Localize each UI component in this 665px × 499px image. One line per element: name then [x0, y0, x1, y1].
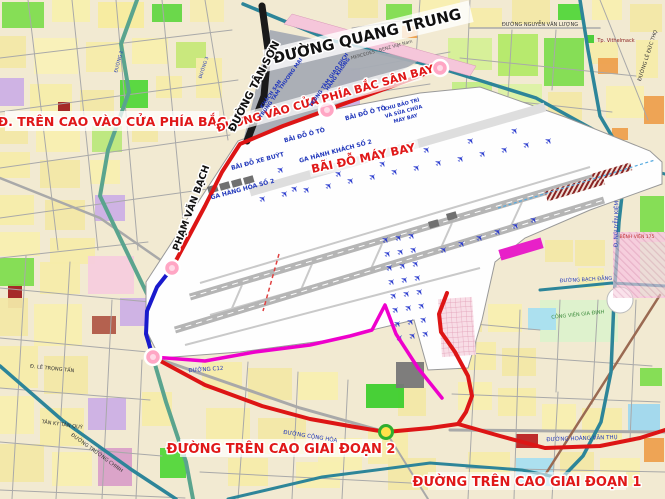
parcel — [644, 438, 664, 462]
parcel — [630, 4, 662, 32]
parcel — [152, 4, 182, 22]
parcel — [628, 404, 660, 432]
parcel — [575, 240, 605, 266]
route-node-pink-core — [150, 354, 156, 360]
parcel — [120, 298, 146, 326]
parcel — [298, 372, 338, 400]
parcel — [544, 38, 584, 86]
parcel — [88, 256, 134, 294]
parcel — [0, 78, 24, 106]
parcel — [0, 36, 26, 68]
parcel — [468, 8, 502, 28]
parcel — [44, 356, 88, 394]
airport-planning-map: ✈✈✈✈✈✈✈✈✈✈✈✈✈✈✈✈✈✈✈✈✈✈✈✈✈✈✈✈✈✈✈✈✈✈✈✈✈✈✈✈… — [0, 0, 665, 499]
route-node-pink-core — [169, 265, 175, 271]
parcel — [644, 96, 664, 124]
label-giai-doan-2: ĐƯỜNG TRÊN CAO GIAI ĐOẠN 2 — [167, 441, 396, 457]
parcel — [248, 368, 292, 400]
parcel — [156, 76, 182, 98]
parcel — [498, 34, 538, 76]
parcel — [52, 0, 90, 22]
parcel — [0, 195, 34, 225]
parcel — [545, 240, 573, 262]
parcel — [542, 404, 576, 432]
parcel — [0, 232, 40, 256]
parcel — [606, 86, 644, 118]
parcel — [512, 0, 550, 24]
parcel — [0, 298, 28, 336]
parcel — [396, 362, 424, 388]
parcel — [40, 262, 80, 294]
parcel — [92, 316, 116, 334]
parcel — [40, 160, 80, 188]
map-canvas: ✈✈✈✈✈✈✈✈✈✈✈✈✈✈✈✈✈✈✈✈✈✈✈✈✈✈✈✈✈✈✈✈✈✈✈✈✈✈✈✈… — [0, 0, 665, 499]
label-duong-tren-cao-cua-bac: Đ. TRÊN CAO VÀO CỬA PHÍA BẮC — [0, 113, 226, 129]
parcel — [98, 2, 144, 28]
parcel — [0, 444, 44, 482]
parcel — [348, 0, 378, 18]
parcel — [640, 368, 662, 386]
label-tp: Tp. Vithelmack — [596, 38, 634, 44]
route-node-green — [380, 426, 393, 439]
parcel — [598, 58, 618, 74]
parcel — [0, 152, 30, 178]
parcel — [458, 382, 492, 410]
parcel — [34, 304, 82, 346]
parcel — [0, 258, 34, 286]
parcel — [2, 2, 44, 28]
parcel — [228, 458, 268, 486]
hospital-block — [613, 232, 665, 298]
label-giai-doan-1: ĐƯỜNG TRÊN CAO GIAI ĐOẠN 1 — [413, 474, 642, 490]
parcel — [34, 38, 78, 74]
route-node-pink-core — [437, 65, 443, 71]
route-node-pink-core — [324, 107, 330, 113]
parcel — [558, 4, 582, 20]
label-nguyen-van-luong: ĐƯỜNG NGUYỄN VĂN LƯỢNG — [502, 20, 578, 28]
